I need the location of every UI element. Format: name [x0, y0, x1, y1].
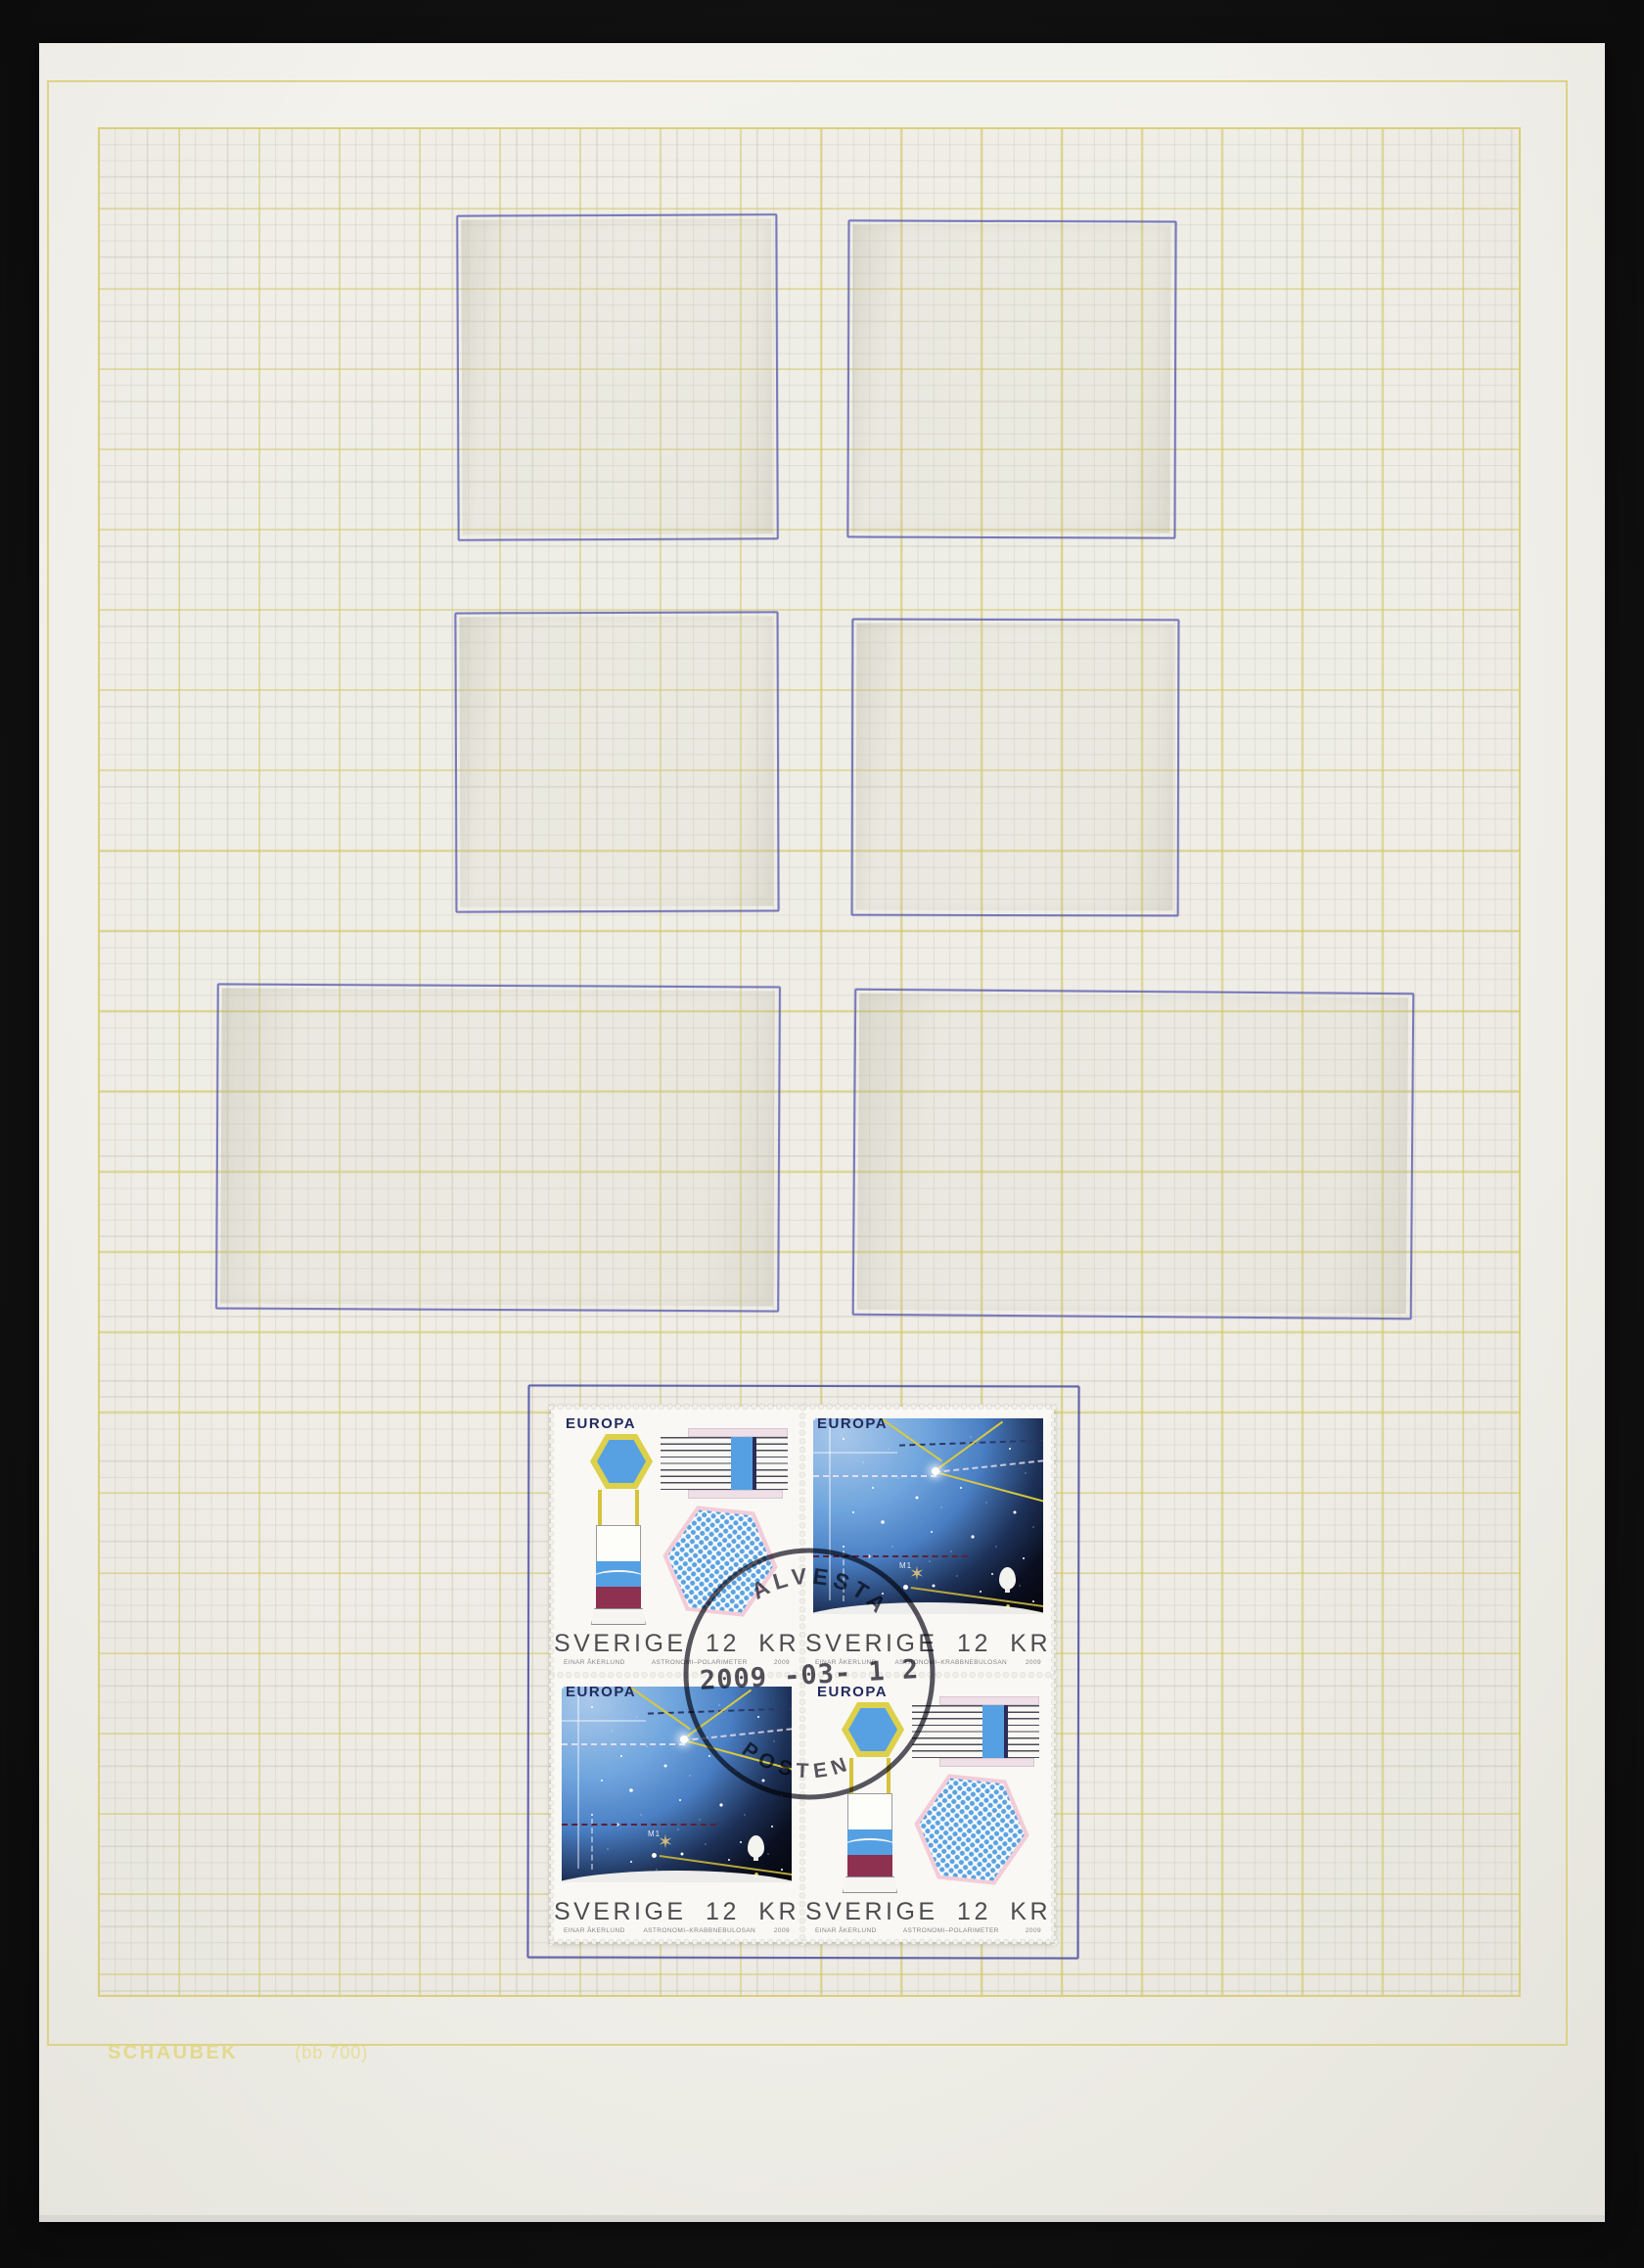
- balloon-payload-dot: [1006, 1604, 1010, 1609]
- europa-logo: EUROPA: [566, 1684, 636, 1700]
- scope-maroon-band: [847, 1855, 892, 1876]
- stamp-caption: EINAR ÅKERLUND ASTRONOMI–POLARIMETER 200…: [815, 1927, 1041, 1934]
- stamp-year: 2009: [774, 1927, 790, 1934]
- scope-blue-band: [596, 1561, 641, 1587]
- album-brand: SCHAUBEK: [108, 2042, 238, 2064]
- grating-lines: [661, 1437, 788, 1490]
- coordinate-line: [813, 1452, 897, 1454]
- hexagon-inner: [597, 1440, 646, 1483]
- glassine-mount: [857, 994, 1409, 1314]
- album-page: EUROPA SVERIGE 12 KR: [39, 43, 1605, 2222]
- coordinate-line: [562, 1720, 646, 1722]
- constellation-line: [879, 1418, 942, 1462]
- grating-top-bar: [939, 1696, 1039, 1705]
- constellation-line: [935, 1471, 1043, 1503]
- balloon-icon: [999, 1567, 1016, 1590]
- grating-diagram: [661, 1428, 788, 1499]
- stamp-title: ASTRONOMI–KRABBNEBULOSAN: [643, 1927, 755, 1934]
- scope-wave: [596, 1570, 641, 1586]
- scope-rod: [598, 1490, 602, 1527]
- grating-blue-block: [982, 1703, 1008, 1760]
- country-denomination: SVERIGE 12 KR: [802, 1898, 1054, 1926]
- glassine-mount: [851, 224, 1170, 532]
- empty-stamp-mount-5: [215, 983, 781, 1312]
- empty-stamp-mount-6: [852, 989, 1415, 1319]
- postmark-town: ALVESTA: [745, 1554, 898, 1623]
- empty-stamp-mount-2: [846, 219, 1176, 538]
- stamp-year: 2009: [1026, 1927, 1041, 1934]
- glassine-mount: [220, 989, 775, 1307]
- empty-stamp-mount-4: [851, 619, 1180, 917]
- constellation-line: [936, 1421, 1003, 1471]
- europa-logo: EUROPA: [817, 1415, 888, 1432]
- engraver-name: EINAR ÅKERLUND: [564, 1659, 625, 1666]
- dashed-coordinate-line: [591, 1819, 593, 1870]
- scope-maroon-band: [596, 1587, 641, 1608]
- stars: [813, 1418, 815, 1420]
- stamp-caption: EINAR ÅKERLUND ASTRONOMI–KRABBNEBULOSAN …: [564, 1927, 790, 1934]
- telescope-diagram: [596, 1490, 641, 1625]
- balloon-icon: [748, 1835, 764, 1858]
- grating-blue-block: [731, 1435, 756, 1492]
- scope-body: [596, 1525, 641, 1562]
- six-point-star-icon: ✶: [658, 1833, 673, 1852]
- stamp-year: 2009: [1026, 1659, 1041, 1666]
- dashed-line-maroon: [562, 1824, 716, 1826]
- scope-rod: [635, 1490, 639, 1527]
- dashed-ecliptic-line: [813, 1475, 936, 1477]
- scope-wave: [847, 1838, 892, 1854]
- glassine-mount: [459, 616, 773, 906]
- scope-base: [591, 1608, 646, 1625]
- grating-top-bar: [688, 1428, 788, 1437]
- stamp-block-of-four: EUROPA SVERIGE 12 KR: [551, 1407, 1054, 1942]
- grating-bottom-bar: [939, 1758, 1034, 1767]
- stars: [562, 1687, 564, 1689]
- engraver-name: EINAR ÅKERLUND: [815, 1927, 877, 1934]
- scope-blue-band: [847, 1829, 892, 1855]
- empty-stamp-mount-1: [456, 213, 778, 540]
- glassine-mount: [461, 218, 772, 534]
- scope-base: [843, 1876, 897, 1893]
- album-page-code: (bb 700): [295, 2043, 368, 2063]
- dashed-ecliptic-line: [935, 1459, 1043, 1473]
- postmark: ALVESTA POSTEN 2009 -03- 1 2: [655, 1519, 964, 1828]
- engraver-name: EINAR ÅKERLUND: [564, 1927, 625, 1934]
- balloon-payload-dot: [754, 1873, 758, 1877]
- hexagon-icon: [590, 1434, 653, 1489]
- empty-stamp-mount-3: [454, 611, 779, 912]
- photo-of-album-page: EUROPA SVERIGE 12 KR: [0, 0, 1644, 2268]
- stamp-title: ASTRONOMI–POLARIMETER: [903, 1927, 999, 1934]
- europa-logo: EUROPA: [566, 1415, 636, 1432]
- mirror-dots: [914, 1776, 1029, 1884]
- glassine-mount: [856, 624, 1174, 911]
- page-footer: SCHAUBEK (bb 700): [108, 2042, 368, 2064]
- postmark-date: 2009 -03- 1 2: [699, 1654, 920, 1696]
- constellation-line: [660, 1855, 792, 1877]
- country-denomination: SVERIGE 12 KR: [551, 1898, 802, 1926]
- bright-star: [932, 1467, 939, 1475]
- star-dot: [652, 1853, 657, 1858]
- grating-bottom-bar: [688, 1490, 783, 1499]
